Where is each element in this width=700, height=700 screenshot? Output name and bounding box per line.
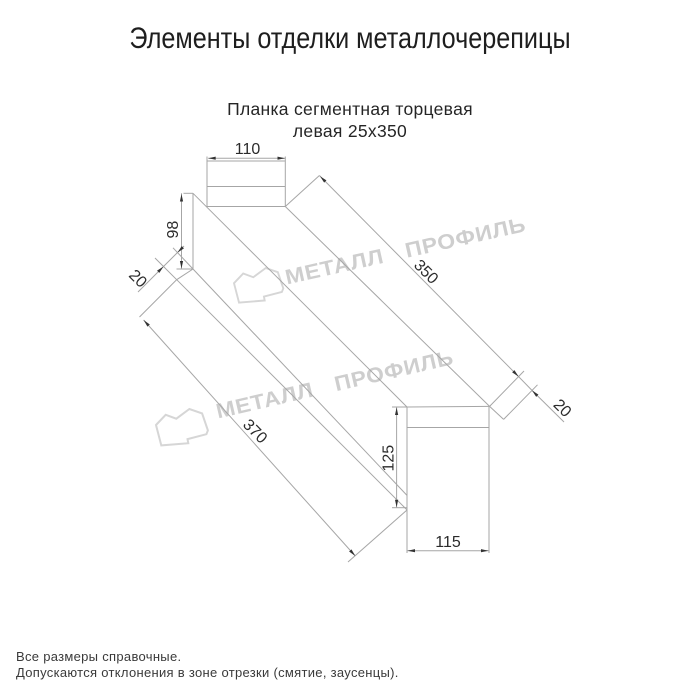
svg-text:125: 125 <box>381 445 398 472</box>
svg-text:350: 350 <box>410 257 441 288</box>
svg-text:370: 370 <box>239 416 270 447</box>
svg-text:98: 98 <box>165 221 182 239</box>
svg-text:20: 20 <box>125 267 150 292</box>
svg-text:МЕТАЛЛ ПРОФИЛЬ: МЕТАЛЛ ПРОФИЛЬ <box>214 346 456 423</box>
svg-text:110: 110 <box>235 141 261 158</box>
svg-text:20: 20 <box>550 396 575 421</box>
svg-text:115: 115 <box>435 534 461 551</box>
svg-text:МЕТАЛЛ ПРОФИЛЬ: МЕТАЛЛ ПРОФИЛЬ <box>283 213 528 289</box>
